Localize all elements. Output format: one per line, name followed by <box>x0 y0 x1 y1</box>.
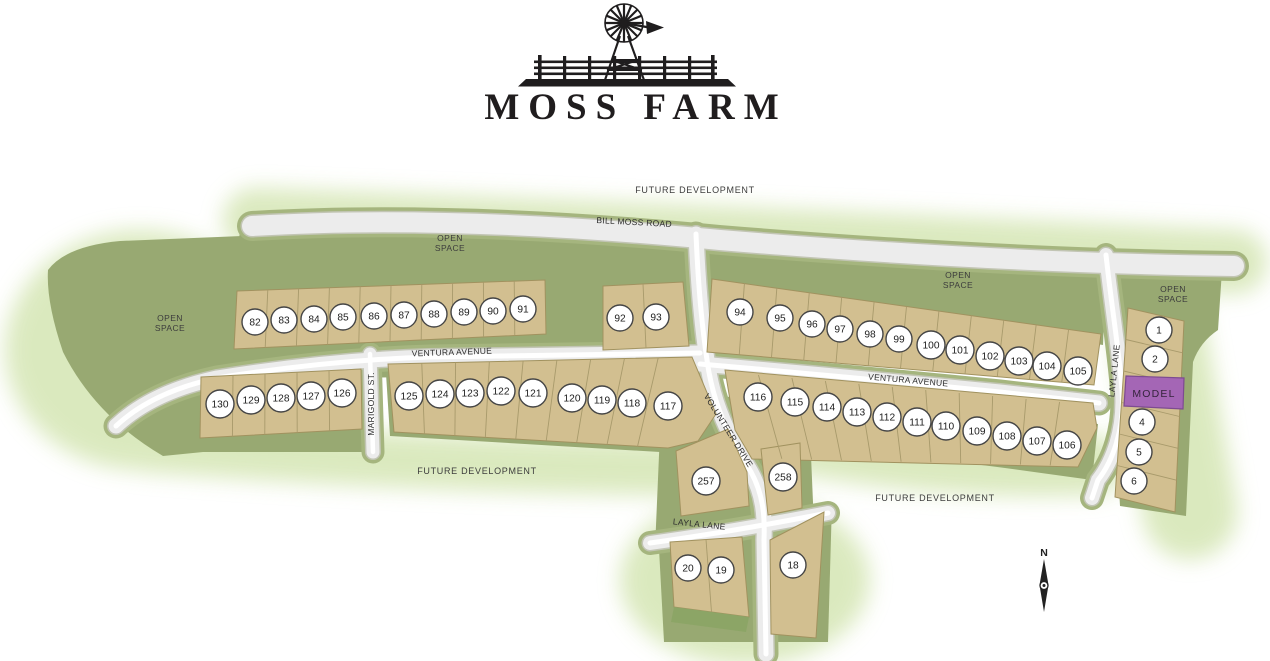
svg-text:111: 111 <box>909 418 925 429</box>
svg-text:85: 85 <box>337 313 349 324</box>
lot-marker-115[interactable]: 115 <box>781 388 809 416</box>
svg-text:90: 90 <box>487 307 499 318</box>
svg-text:115: 115 <box>787 398 804 409</box>
svg-text:105: 105 <box>1070 367 1087 378</box>
svg-text:113: 113 <box>849 408 866 419</box>
svg-text:120: 120 <box>564 394 581 405</box>
svg-text:121: 121 <box>525 389 542 400</box>
lot-marker-113[interactable]: 113 <box>843 398 871 426</box>
lot-marker-105[interactable]: 105 <box>1064 357 1092 385</box>
svg-text:94: 94 <box>734 308 746 319</box>
lot-marker-117[interactable]: 117 <box>654 392 682 420</box>
svg-text:107: 107 <box>1029 437 1046 448</box>
lot-marker-121[interactable]: 121 <box>519 379 547 407</box>
svg-text:91: 91 <box>517 305 529 316</box>
lot-marker-112[interactable]: 112 <box>873 403 901 431</box>
svg-text:4: 4 <box>1139 418 1145 429</box>
svg-text:89: 89 <box>458 308 470 319</box>
lot-marker-86[interactable]: 86 <box>361 303 387 329</box>
lot-marker-90[interactable]: 90 <box>480 298 506 324</box>
lot-marker-82[interactable]: 82 <box>242 309 268 335</box>
lot-marker-97[interactable]: 97 <box>827 316 853 342</box>
svg-text:84: 84 <box>308 315 320 326</box>
lot-marker-92[interactable]: 92 <box>607 305 633 331</box>
svg-text:123: 123 <box>462 389 479 400</box>
svg-text:102: 102 <box>982 352 999 363</box>
svg-text:SPACE: SPACE <box>1158 294 1188 304</box>
svg-text:117: 117 <box>660 402 677 413</box>
lot-marker-19[interactable]: 19 <box>708 557 734 583</box>
svg-text:100: 100 <box>923 341 940 352</box>
lot-marker-257[interactable]: 257 <box>692 467 720 495</box>
svg-text:97: 97 <box>834 325 846 336</box>
lot-marker-2[interactable]: 2 <box>1142 346 1168 372</box>
lot-marker-98[interactable]: 98 <box>857 321 883 347</box>
svg-text:OPEN: OPEN <box>157 313 183 323</box>
lot-marker-96[interactable]: 96 <box>799 311 825 337</box>
future-development-label-southwest: FUTURE DEVELOPMENT <box>417 466 537 476</box>
lot-marker-118[interactable]: 118 <box>618 389 646 417</box>
svg-text:125: 125 <box>401 392 418 403</box>
lot-marker-85[interactable]: 85 <box>330 304 356 330</box>
lot-marker-124[interactable]: 124 <box>426 380 454 408</box>
lot-marker-122[interactable]: 122 <box>487 377 515 405</box>
lot-marker-99[interactable]: 99 <box>886 326 912 352</box>
lot-marker-111[interactable]: 111 <box>903 408 931 436</box>
svg-text:258: 258 <box>775 473 792 484</box>
lot-marker-18[interactable]: 18 <box>780 552 806 578</box>
svg-text:86: 86 <box>368 312 380 323</box>
lot-marker-123[interactable]: 123 <box>456 379 484 407</box>
svg-text:20: 20 <box>682 564 694 575</box>
lot-marker-107[interactable]: 107 <box>1023 427 1051 455</box>
svg-text:104: 104 <box>1039 362 1056 373</box>
svg-text:122: 122 <box>493 387 510 398</box>
lot-marker-100[interactable]: 100 <box>917 331 945 359</box>
model-lot[interactable]: MODEL <box>1124 376 1184 409</box>
svg-text:18: 18 <box>787 561 799 572</box>
lot-marker-104[interactable]: 104 <box>1033 352 1061 380</box>
svg-text:130: 130 <box>212 400 229 411</box>
svg-text:112: 112 <box>879 413 896 424</box>
north-label: N <box>1040 547 1048 559</box>
svg-text:83: 83 <box>278 316 290 327</box>
svg-text:1: 1 <box>1156 326 1162 337</box>
open-space-label-west: OPEN SPACE <box>155 313 185 333</box>
svg-text:129: 129 <box>243 396 260 407</box>
site-plan-page: MODEL FUTURE DEVELOPMENT FUTURE DEVELOPM… <box>0 0 1270 661</box>
lot-marker-126[interactable]: 126 <box>328 379 356 407</box>
lot-marker-130[interactable]: 130 <box>206 390 234 418</box>
open-space-label-east: OPEN SPACE <box>943 270 973 290</box>
lot-marker-1[interactable]: 1 <box>1146 317 1172 343</box>
svg-text:257: 257 <box>698 477 715 488</box>
svg-text:119: 119 <box>594 396 611 407</box>
lot-marker-125[interactable]: 125 <box>395 382 423 410</box>
lot-marker-127[interactable]: 127 <box>297 382 325 410</box>
lot-marker-119[interactable]: 119 <box>588 386 616 414</box>
svg-text:124: 124 <box>432 390 449 401</box>
svg-text:6: 6 <box>1131 477 1137 488</box>
page-title: MOSS FARM <box>484 87 787 128</box>
lot-marker-103[interactable]: 103 <box>1005 347 1033 375</box>
svg-text:126: 126 <box>334 389 351 400</box>
future-development-label-southeast: FUTURE DEVELOPMENT <box>875 493 995 503</box>
svg-text:87: 87 <box>398 311 410 322</box>
svg-text:92: 92 <box>614 314 626 325</box>
svg-text:95: 95 <box>774 314 786 325</box>
svg-text:101: 101 <box>952 346 969 357</box>
future-development-label-north: FUTURE DEVELOPMENT <box>635 185 755 195</box>
svg-text:103: 103 <box>1011 357 1028 368</box>
model-lot-label: MODEL <box>1132 388 1175 400</box>
lot-marker-83[interactable]: 83 <box>271 307 297 333</box>
svg-text:96: 96 <box>806 320 818 331</box>
svg-text:108: 108 <box>999 432 1016 443</box>
lot-marker-101[interactable]: 101 <box>946 336 974 364</box>
svg-text:82: 82 <box>249 318 261 329</box>
open-space-label-top-middle: OPEN SPACE <box>435 233 465 253</box>
svg-text:128: 128 <box>273 394 290 405</box>
svg-text:SPACE: SPACE <box>435 243 465 253</box>
svg-text:110: 110 <box>938 422 955 433</box>
lot-marker-5[interactable]: 5 <box>1126 439 1152 465</box>
svg-text:99: 99 <box>893 335 905 346</box>
lot-marker-116[interactable]: 116 <box>744 383 772 411</box>
svg-text:OPEN: OPEN <box>1160 284 1186 294</box>
svg-text:SPACE: SPACE <box>155 323 185 333</box>
lot-marker-258[interactable]: 258 <box>769 463 797 491</box>
lot-marker-87[interactable]: 87 <box>391 302 417 328</box>
marigold-st-label: MARIGOLD ST. <box>366 372 376 436</box>
svg-text:106: 106 <box>1059 441 1076 452</box>
windmill-icon <box>518 4 736 87</box>
lot-marker-20[interactable]: 20 <box>675 555 701 581</box>
lot-marker-88[interactable]: 88 <box>421 301 447 327</box>
lot-marker-109[interactable]: 109 <box>963 417 991 445</box>
svg-text:5: 5 <box>1136 448 1142 459</box>
north-arrow-icon: N <box>1040 547 1049 612</box>
lot-marker-120[interactable]: 120 <box>558 384 586 412</box>
lot-marker-4[interactable]: 4 <box>1129 409 1155 435</box>
lot-marker-128[interactable]: 128 <box>267 384 295 412</box>
svg-text:19: 19 <box>715 566 727 577</box>
moss-farm-logo: MOSS FARM <box>484 4 787 128</box>
lot-marker-108[interactable]: 108 <box>993 422 1021 450</box>
svg-text:93: 93 <box>650 313 662 324</box>
lot-marker-84[interactable]: 84 <box>301 306 327 332</box>
lot-marker-114[interactable]: 114 <box>813 393 841 421</box>
lot-marker-95[interactable]: 95 <box>767 305 793 331</box>
svg-text:109: 109 <box>969 427 986 438</box>
lot-marker-106[interactable]: 106 <box>1053 431 1081 459</box>
lot-marker-91[interactable]: 91 <box>510 296 536 322</box>
lot-marker-6[interactable]: 6 <box>1121 468 1147 494</box>
lot-marker-93[interactable]: 93 <box>643 304 669 330</box>
lot-marker-89[interactable]: 89 <box>451 299 477 325</box>
open-space-label-far-east: OPEN SPACE <box>1158 284 1188 304</box>
svg-text:SPACE: SPACE <box>943 280 973 290</box>
svg-text:114: 114 <box>819 403 836 414</box>
lot-marker-102[interactable]: 102 <box>976 342 1004 370</box>
lot-marker-110[interactable]: 110 <box>932 412 960 440</box>
svg-text:OPEN: OPEN <box>437 233 463 243</box>
site-plan-map: MODEL FUTURE DEVELOPMENT FUTURE DEVELOPM… <box>0 0 1270 661</box>
svg-text:118: 118 <box>624 399 641 410</box>
svg-text:88: 88 <box>428 310 440 321</box>
lot-marker-94[interactable]: 94 <box>727 299 753 325</box>
svg-text:OPEN: OPEN <box>945 270 971 280</box>
svg-text:127: 127 <box>303 392 320 403</box>
svg-text:2: 2 <box>1152 355 1158 366</box>
lot-marker-129[interactable]: 129 <box>237 386 265 414</box>
svg-text:116: 116 <box>750 393 767 404</box>
svg-text:98: 98 <box>864 330 876 341</box>
